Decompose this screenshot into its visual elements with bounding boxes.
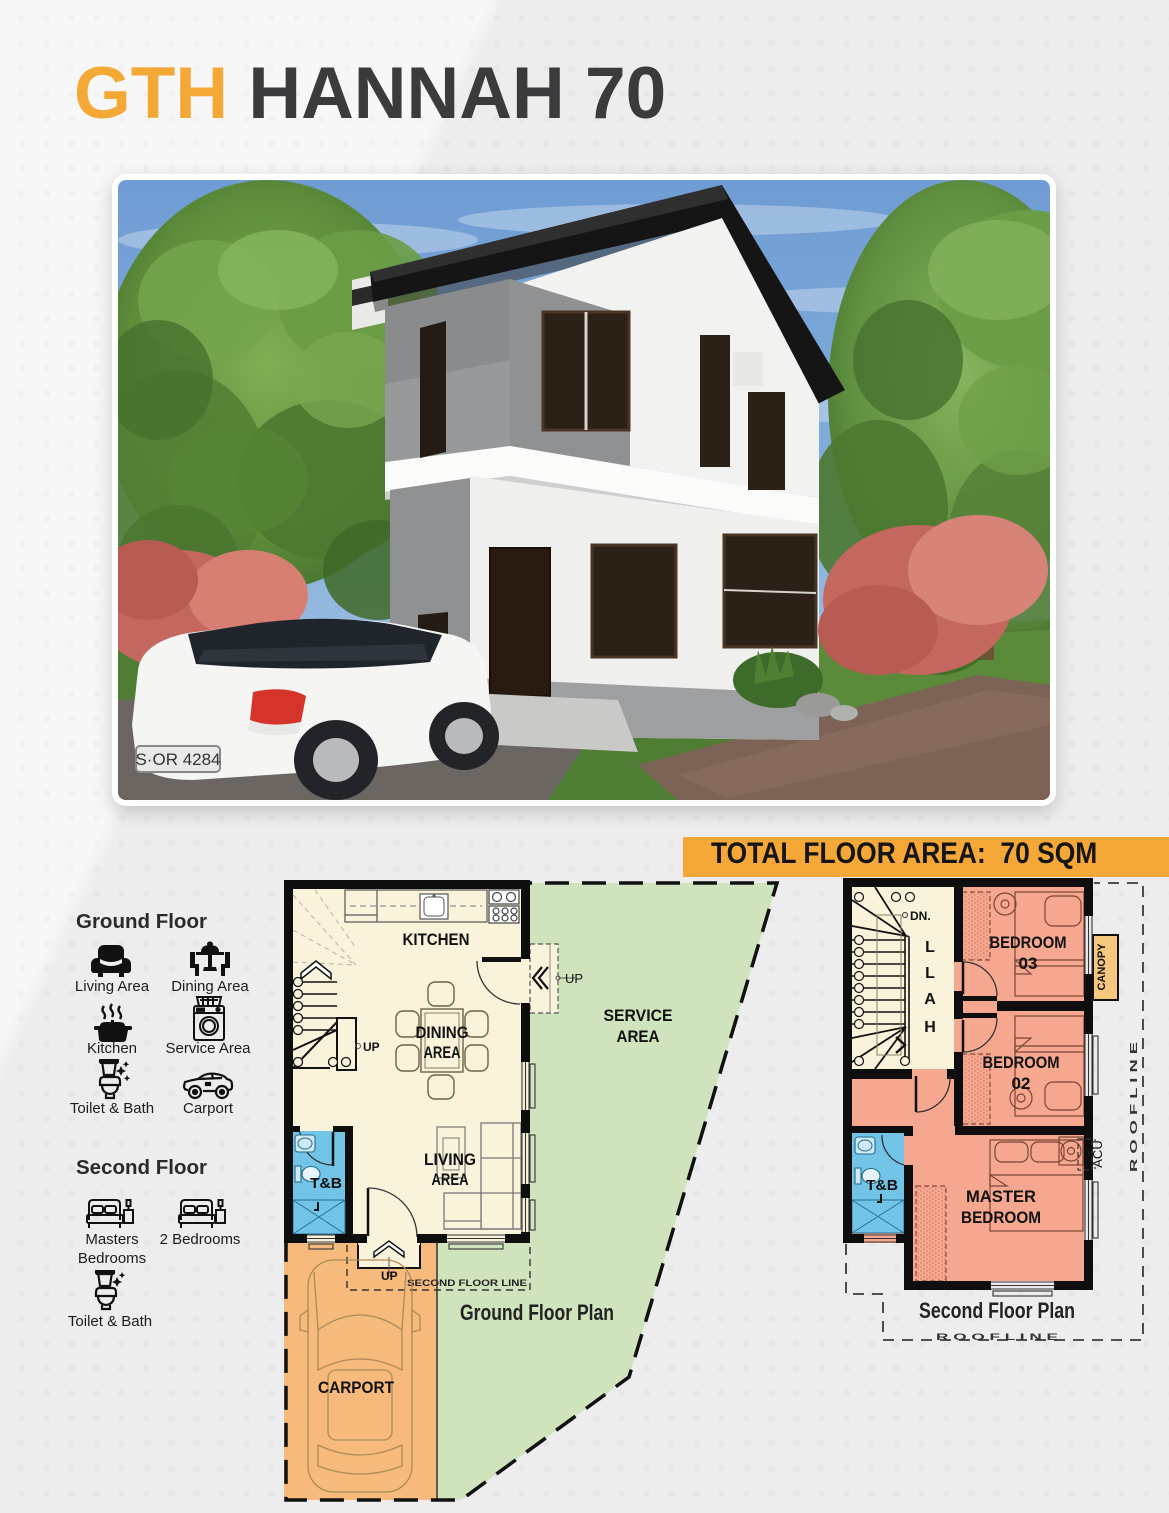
svg-text:Ground Floor Plan: Ground Floor Plan (460, 1300, 614, 1325)
svg-text:LIVING: LIVING (424, 1150, 476, 1169)
svg-text:DN.: DN. (910, 909, 931, 923)
svg-text:SERVICE: SERVICE (604, 1006, 673, 1025)
svg-text:AREA: AREA (424, 1043, 461, 1062)
svg-text:BEDROOM: BEDROOM (983, 1053, 1060, 1072)
svg-text:KITCHEN: KITCHEN (403, 930, 470, 949)
svg-text:UP: UP (565, 971, 583, 986)
svg-text:UP: UP (381, 1269, 398, 1283)
svg-text:Second Floor Plan: Second Floor Plan (919, 1298, 1075, 1323)
svg-text:CARPORT: CARPORT (318, 1378, 395, 1397)
svg-text:ACU: ACU (1090, 1140, 1105, 1167)
svg-text:H: H (924, 1019, 936, 1036)
svg-text:S·OR 4284: S·OR 4284 (135, 750, 220, 769)
svg-text:DINING: DINING (416, 1023, 469, 1042)
svg-text:02: 02 (1012, 1074, 1031, 1093)
svg-text:L: L (925, 939, 935, 956)
svg-text:AREA: AREA (432, 1170, 469, 1189)
svg-text:A: A (924, 991, 936, 1008)
svg-text:MASTER: MASTER (966, 1187, 1036, 1206)
svg-text:T&B: T&B (866, 1177, 898, 1194)
svg-text:AREA: AREA (617, 1027, 660, 1046)
svg-text:T&B: T&B (310, 1175, 342, 1192)
svg-text:03: 03 (1019, 954, 1038, 973)
svg-text:BEDROOM: BEDROOM (990, 933, 1067, 952)
svg-text:CANOPY: CANOPY (1096, 943, 1108, 991)
svg-text:UP: UP (363, 1040, 380, 1054)
svg-text:BEDROOM: BEDROOM (961, 1208, 1041, 1227)
svg-text:L: L (925, 965, 935, 982)
svg-text:R O O F L I N E: R O O F L I N E (936, 1332, 1058, 1343)
svg-text:R O O F L I N E: R O O F L I N E (1128, 1042, 1140, 1172)
svg-text:SECOND FLOOR LINE: SECOND FLOOR LINE (407, 1278, 527, 1289)
